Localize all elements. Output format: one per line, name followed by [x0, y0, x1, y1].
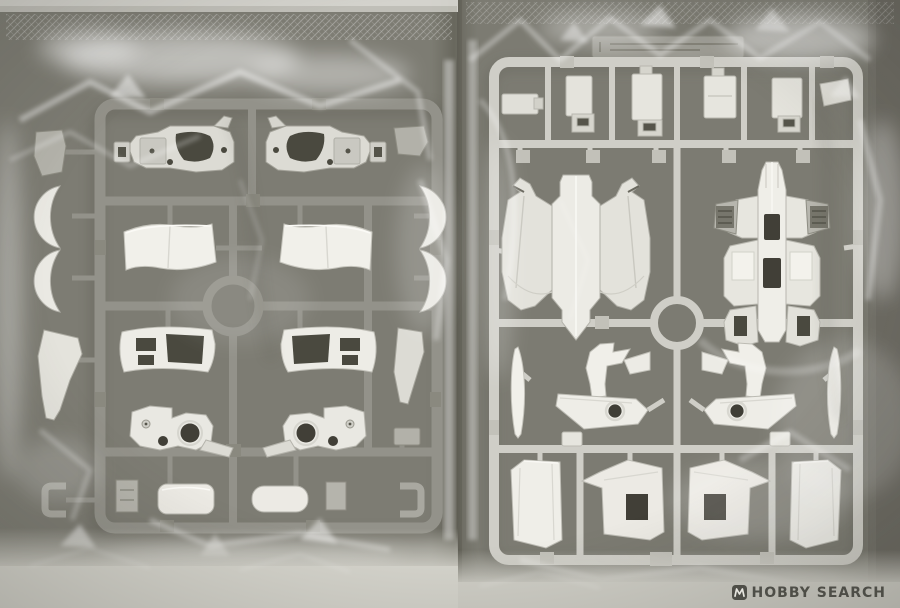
watermark-text: HOBBY SEARCH	[752, 585, 886, 601]
hobby-search-logo-icon	[732, 586, 747, 601]
product-photo: HOBBY SEARCH	[0, 0, 900, 608]
vignette	[0, 0, 900, 608]
hobby-search-watermark: HOBBY SEARCH	[732, 585, 886, 601]
scene-graphic	[0, 0, 900, 608]
